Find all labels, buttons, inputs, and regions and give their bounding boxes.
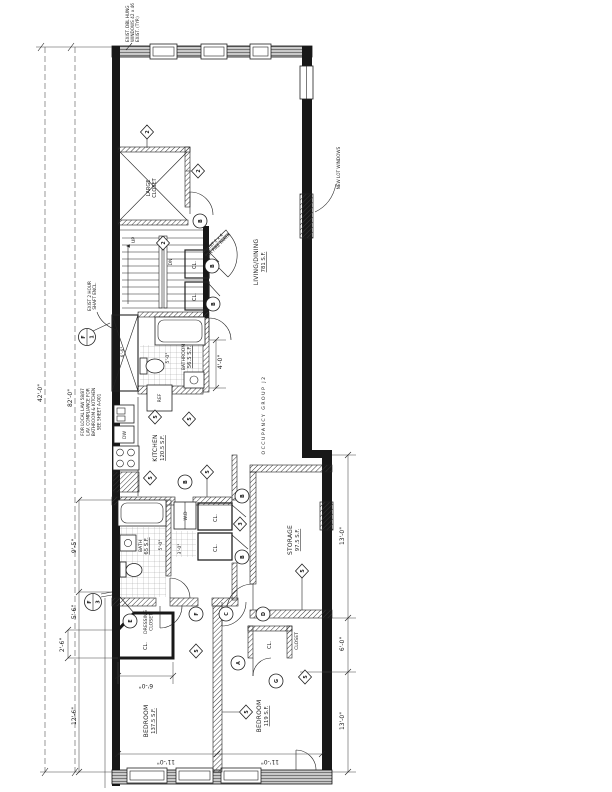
dim-hall-a: 5'-0" bbox=[158, 540, 164, 551]
svg-text:12'-6": 12'-6" bbox=[71, 707, 78, 725]
svg-text:C: C bbox=[224, 612, 230, 616]
dim-left-3: 12'-6" bbox=[71, 707, 78, 725]
svg-text:2: 2 bbox=[161, 241, 167, 244]
svg-text:REF: REF bbox=[157, 393, 163, 402]
svg-text:KITCHEN: KITCHEN bbox=[152, 434, 159, 461]
closet-wall-right bbox=[185, 147, 190, 207]
svg-text:9'-5": 9'-5" bbox=[71, 539, 78, 553]
svg-text:A: A bbox=[236, 661, 242, 665]
svg-text:4'-0": 4'-0" bbox=[217, 355, 224, 369]
svg-text:3: 3 bbox=[238, 522, 244, 525]
north-window-2 bbox=[201, 44, 227, 59]
svg-text:UP: UP bbox=[131, 237, 137, 243]
east-lot-window bbox=[300, 194, 313, 238]
svg-text:119 S.F.: 119 S.F. bbox=[264, 705, 270, 726]
floor-plan-drawing: UP DN LARGECLOSET LIVING/DINING 781 S.F.… bbox=[0, 0, 612, 792]
svg-text:W.D: W.D bbox=[183, 511, 189, 520]
dim-bath-width: 4'-0" bbox=[217, 355, 224, 369]
north-window-3 bbox=[250, 44, 271, 59]
storage-wall-top bbox=[250, 465, 332, 472]
dim-bath-inner: 5'-0" bbox=[165, 353, 171, 364]
bath2-door bbox=[170, 578, 190, 598]
svg-text:DW: DW bbox=[122, 431, 128, 440]
svg-text:F: F bbox=[87, 600, 93, 603]
local-law-note: FOR LOCAL LAW 58/87LAV. COMPLIANCE FORBA… bbox=[80, 388, 102, 436]
svg-text:LARGECLOSET: LARGECLOSET bbox=[146, 177, 158, 197]
svg-text:5'-6": 5'-6" bbox=[71, 605, 78, 619]
hall-closet-door-2 bbox=[232, 535, 248, 549]
door-tag-b5: B bbox=[235, 489, 249, 503]
dimensions-left: 42'-0" 82'-0" 9'-5" 5'-6" 2'-6" 12'-6" bbox=[36, 43, 118, 776]
bath1-wall-top bbox=[138, 312, 209, 317]
window-note: EXIST. DBL HUNGWINDOWS 42 x 46EXIST. (TY… bbox=[125, 3, 140, 42]
dim-right-0: 13'-0" bbox=[339, 527, 346, 545]
svg-text:13'-0": 13'-0" bbox=[339, 527, 346, 545]
bath2-tub bbox=[118, 500, 166, 526]
svg-text:6'-6": 6'-6" bbox=[120, 347, 126, 358]
room-label-dressing-closet: DRESSINGCLOSET bbox=[143, 610, 155, 634]
section-marker-f1: F 1 bbox=[79, 323, 111, 346]
keynote-diamond-5e: 5 bbox=[296, 564, 309, 578]
kitchen-wall-bottom-b bbox=[193, 497, 232, 505]
room-label-kitchen: KITCHEN 120.5 S.F. bbox=[152, 434, 166, 461]
svg-text:1: 1 bbox=[90, 335, 96, 338]
dim-shaft: 6'-6" bbox=[120, 347, 126, 358]
door-tag-b1: B bbox=[193, 214, 207, 228]
svg-text:2: 2 bbox=[196, 169, 202, 172]
svg-text:5'-0": 5'-0" bbox=[165, 353, 171, 364]
door-tag-d: D bbox=[256, 607, 270, 621]
lot-window-note: NEW LOT WINDOWS bbox=[336, 146, 341, 189]
south-window-1 bbox=[127, 768, 167, 783]
b2-closet-wall-top bbox=[248, 626, 292, 631]
cl-label-2: CL. bbox=[192, 293, 198, 301]
svg-text:3'-0": 3'-0" bbox=[177, 544, 183, 555]
room-label-bedroom1: BEDROOM 137.5 S.F. bbox=[143, 705, 157, 738]
bath2-wall-right bbox=[166, 500, 171, 576]
room-label-bathroom: BATHROOM 56.5 S.F. bbox=[181, 344, 193, 371]
svg-text:6'-0": 6'-0" bbox=[339, 637, 346, 651]
occupancy-label: OCCUPANCY GROUP J2 bbox=[261, 375, 267, 454]
south-entry-door bbox=[296, 750, 316, 770]
svg-text:5: 5 bbox=[187, 417, 193, 420]
bath1-sink bbox=[184, 372, 204, 388]
keynote-diamond-5a: 5 bbox=[149, 410, 162, 424]
door-tag-c: C bbox=[219, 607, 233, 621]
keynote-diamond-2a: 2 bbox=[141, 125, 154, 139]
svg-text:5: 5 bbox=[205, 470, 211, 473]
keynote-diamond-3: 3 bbox=[234, 517, 247, 531]
svg-text:42'-0": 42'-0" bbox=[37, 384, 44, 402]
svg-text:F: F bbox=[194, 612, 200, 615]
dim-right-2: 13'-0" bbox=[339, 712, 346, 730]
keynote-diamond-5f: 5 bbox=[190, 644, 203, 658]
room-label-living: LIVING/DINING 781 S.F. bbox=[253, 239, 267, 286]
svg-text:D: D bbox=[261, 612, 267, 616]
bath2-sink bbox=[120, 535, 136, 551]
hall-wall-b bbox=[170, 598, 198, 606]
east-window-1 bbox=[300, 66, 313, 99]
svg-text:DN: DN bbox=[168, 259, 174, 266]
closet-wall-bottom bbox=[118, 220, 188, 225]
door-tag-b2: B bbox=[205, 259, 219, 273]
svg-text:56.5 S.F.: 56.5 S.F. bbox=[187, 345, 193, 368]
svg-text:DRESSINGCLOSET: DRESSINGCLOSET bbox=[143, 610, 155, 634]
svg-text:OCCUPANCY GROUP J2: OCCUPANCY GROUP J2 bbox=[261, 375, 267, 454]
b2-closet-wall-right bbox=[287, 626, 292, 658]
svg-text:5'-0": 5'-0" bbox=[158, 540, 164, 551]
dim-overall-a: 42'-0" bbox=[37, 384, 44, 402]
svg-text:CLOSET: CLOSET bbox=[294, 632, 300, 650]
corridor-wall-lower bbox=[232, 563, 237, 600]
svg-text:B: B bbox=[210, 264, 216, 268]
kitchen-base-cabinet bbox=[113, 472, 139, 492]
hall-closet-door-1 bbox=[232, 505, 246, 517]
section-marker-f3: F 3 bbox=[85, 592, 113, 611]
hall-wall-c bbox=[212, 598, 238, 606]
dim-left-2: 2'-6" bbox=[59, 638, 66, 652]
dim-closet-width: 6'-0" bbox=[139, 682, 153, 689]
svg-text:13'-0": 13'-0" bbox=[339, 712, 346, 730]
b2-closet-door-arc bbox=[253, 658, 271, 676]
dim-bedroom2-width: 11'-0" bbox=[261, 758, 279, 765]
break-marks bbox=[38, 43, 78, 776]
svg-text:BEDROOM: BEDROOM bbox=[256, 700, 263, 733]
svg-text:EXIST 2 HOURSHAFT ENCL.: EXIST 2 HOURSHAFT ENCL. bbox=[87, 281, 97, 311]
svg-text:82'-0": 82'-0" bbox=[67, 389, 74, 407]
section-markers: F 1 F 3 bbox=[79, 323, 113, 611]
dim-hall-b: 3'-0" bbox=[177, 544, 183, 555]
bedroom-demising-wall bbox=[213, 606, 222, 772]
door-tag-b4: B bbox=[178, 475, 192, 489]
door-tag-g: G bbox=[269, 674, 283, 688]
svg-text:5: 5 bbox=[153, 415, 159, 418]
cl-label-4: CL. bbox=[213, 544, 219, 552]
svg-text:EXIST. DBL HUNGWINDOWS 42 x 46: EXIST. DBL HUNGWINDOWS 42 x 46EXIST. (TY… bbox=[125, 3, 140, 42]
svg-text:B: B bbox=[183, 480, 189, 484]
svg-text:CL.: CL. bbox=[192, 293, 198, 301]
svg-text:LIVING/DINING: LIVING/DINING bbox=[253, 239, 260, 286]
svg-text:120.5 S.F.: 120.5 S.F. bbox=[160, 435, 166, 461]
bath1-wall-bottom-a bbox=[138, 386, 147, 394]
large-closet-door bbox=[190, 192, 213, 215]
hall-tile-floor bbox=[172, 531, 196, 557]
svg-text:5: 5 bbox=[303, 675, 309, 678]
bedroom1-door bbox=[160, 606, 182, 628]
stair-dn-label: DN bbox=[168, 259, 174, 266]
room-label-closet: CLOSET bbox=[294, 632, 300, 650]
door-tag-b3: B bbox=[206, 297, 220, 311]
floor-plan-sheet: UP DN LARGECLOSET LIVING/DINING 781 S.F.… bbox=[0, 0, 612, 792]
shaft-note: EXIST 2 HOURSHAFT ENCL. bbox=[87, 281, 97, 311]
storage-wall-left bbox=[250, 472, 256, 584]
svg-text:CL.: CL. bbox=[213, 544, 219, 552]
dim-overall-b: 82'-0" bbox=[67, 389, 74, 407]
south-window-3 bbox=[221, 768, 261, 783]
east-window-2 bbox=[320, 502, 333, 530]
dim-left-1: 5'-6" bbox=[71, 605, 78, 619]
room-label-large-closet: LARGECLOSET bbox=[146, 177, 158, 197]
left-chain-ticks bbox=[65, 497, 82, 775]
kitchen-range bbox=[113, 446, 139, 470]
svg-text:CL.: CL. bbox=[267, 641, 273, 649]
cl-label-3: CL. bbox=[213, 514, 219, 522]
svg-text:G: G bbox=[274, 679, 280, 683]
svg-text:97.5 S.F.: 97.5 S.F. bbox=[295, 528, 301, 551]
svg-text:CL.: CL. bbox=[192, 261, 198, 269]
svg-text:11'-0": 11'-0" bbox=[261, 758, 279, 765]
bath1-door bbox=[209, 318, 231, 340]
keynote-diamond-2b: 2 bbox=[192, 164, 205, 178]
svg-text:B: B bbox=[240, 494, 246, 498]
svg-text:781 S.F.: 781 S.F. bbox=[261, 251, 267, 272]
svg-text:FOR LOCAL LAW 58/87LAV. COMPLI: FOR LOCAL LAW 58/87LAV. COMPLIANCE FORBA… bbox=[80, 388, 102, 436]
svg-text:B: B bbox=[240, 555, 246, 559]
stairside-closet-door-2 bbox=[209, 284, 220, 296]
svg-text:6'-0": 6'-0" bbox=[139, 682, 153, 689]
svg-text:11'-0": 11'-0" bbox=[157, 758, 175, 765]
bath1-tub bbox=[155, 317, 205, 345]
svg-text:2: 2 bbox=[145, 130, 151, 133]
ref-label: REF bbox=[157, 393, 163, 402]
kitchen-sink bbox=[114, 405, 134, 423]
svg-text:65 S.F.: 65 S.F. bbox=[144, 537, 150, 555]
svg-text:5: 5 bbox=[148, 476, 154, 479]
svg-text:5: 5 bbox=[300, 569, 306, 572]
keynote-diamond-5d: 5 bbox=[201, 465, 214, 479]
door-tag-e: E bbox=[123, 614, 137, 628]
keynote-diamond-5c: 5 bbox=[144, 471, 157, 485]
svg-text:STORAGE: STORAGE bbox=[287, 525, 294, 555]
bath1-toilet bbox=[140, 358, 164, 374]
dim-right-1: 6'-0" bbox=[339, 637, 346, 651]
svg-text:B: B bbox=[211, 302, 217, 306]
svg-text:5: 5 bbox=[194, 649, 200, 652]
svg-text:CL.: CL. bbox=[143, 642, 149, 650]
door-tag-b6: B bbox=[235, 550, 249, 564]
room-label-bedroom2: BEDROOM 119 S.F. bbox=[256, 700, 270, 733]
cl-label-1: CL. bbox=[192, 261, 198, 269]
svg-text:137.5 S.F.: 137.5 S.F. bbox=[151, 708, 157, 734]
cl-label-5: CL. bbox=[143, 642, 149, 650]
door-tag-a: A bbox=[231, 656, 245, 670]
room-label-storage: STORAGE 97.5 S.F. bbox=[287, 525, 301, 555]
svg-text:5: 5 bbox=[244, 710, 250, 713]
hall-wall-a bbox=[112, 598, 156, 606]
east-wall-upper bbox=[302, 46, 312, 456]
svg-text:3: 3 bbox=[96, 600, 102, 603]
closet-wall-top bbox=[118, 147, 190, 152]
dw-label: DW bbox=[122, 431, 128, 440]
south-window-2 bbox=[176, 768, 213, 783]
svg-text:E: E bbox=[128, 619, 134, 622]
svg-text:NEW LOT WINDOWS: NEW LOT WINDOWS bbox=[336, 146, 341, 189]
north-window-1 bbox=[150, 44, 177, 59]
door-tag-f: F bbox=[189, 607, 203, 621]
keynote-diamond-5b: 5 bbox=[183, 412, 196, 426]
svg-text:F: F bbox=[81, 335, 87, 338]
cl-label-6: CL. bbox=[267, 641, 273, 649]
wd-label: W.D bbox=[183, 511, 189, 520]
dim-bedroom1-width: 11'-0" bbox=[157, 758, 175, 765]
dim-left-0: 9'-5" bbox=[71, 539, 78, 553]
svg-text:CL.: CL. bbox=[213, 514, 219, 522]
svg-text:BEDROOM: BEDROOM bbox=[143, 705, 150, 738]
b2-closet-wall-left bbox=[248, 626, 253, 658]
svg-text:B: B bbox=[198, 219, 204, 223]
keynote-diamond-5h: 5 bbox=[240, 705, 253, 719]
svg-text:2'-6": 2'-6" bbox=[59, 638, 66, 652]
stair-up-label: UP bbox=[131, 237, 137, 243]
